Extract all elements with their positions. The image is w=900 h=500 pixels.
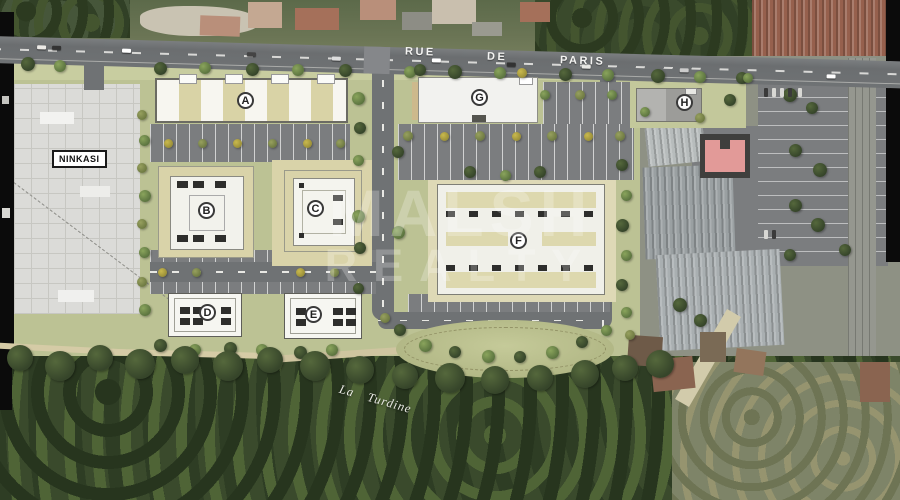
parking-row-east-g [543,82,631,124]
car-icon [680,68,689,72]
warehouse-roof [642,164,735,259]
parking-lot-central [398,124,634,180]
house-roof [360,0,396,20]
house-roof [472,22,502,36]
basin-path-ring [404,327,606,371]
building-label-c: C [307,200,324,217]
rooftop-unit [492,265,501,271]
car-icon [247,52,256,56]
house-roof [650,356,695,392]
car-icon [37,45,46,49]
car-icon [827,74,836,78]
building-label-d: D [199,304,216,321]
scan-edge-left-low [0,352,12,410]
retention-basin [396,320,614,378]
house-roof [200,15,241,36]
house-roof [860,362,890,402]
building-label-g: G [471,89,488,106]
rooftop-unit [469,265,478,271]
rooftop-unit [584,265,593,271]
building-label-e: E [305,306,322,323]
building-label-h: H [676,94,693,111]
rooftop-unit [515,265,524,271]
scan-edge-right [886,0,900,262]
rooftop-unit [538,211,547,217]
industrial-roof-topright [752,0,886,58]
rooftop-unit [446,265,455,271]
car-icon [432,58,441,62]
house-roof [520,2,550,22]
car-icon [122,49,131,53]
ninkasi-roof-block [40,112,74,124]
sport-court-goal [720,140,730,149]
rooftop-unit [561,211,570,217]
site-plan-canvas: RUE DE PARIS NINKASI La Turdine A B C D … [0,0,900,500]
sport-court [700,134,750,178]
ninkasi-roof-block [58,290,94,302]
rooftop-unit [538,265,547,271]
rooftop-unit [492,211,501,217]
rooftop-unit [515,211,524,217]
house-roof [432,0,476,24]
building-label-b: B [198,202,215,219]
street-name-word: DE [487,51,508,64]
ninkasi-roof-block [80,186,110,197]
aerial-top-trees [535,0,770,60]
ninkasi-label: NINKASI [52,150,107,168]
parking-row-north [150,124,350,162]
crosswalk [363,46,390,74]
car-icon [52,46,61,50]
house-roof [733,348,766,376]
rooftop-unit [446,211,455,217]
street-name-word: PARIS [560,54,606,68]
scan-edge-mark [2,96,9,104]
car-icon [507,62,516,66]
building-label-a: A [237,92,254,109]
house-roof [402,12,432,30]
house-roof [295,8,339,30]
building-label-f: F [510,232,527,249]
building-e [284,293,362,339]
rooftop-unit [584,211,593,217]
aerial-topleft-trees [0,0,130,38]
rooftop-unit [561,265,570,271]
house-roof [700,332,726,362]
car-icon [332,56,341,60]
railway-corridor [848,58,876,364]
rooftop-unit [469,211,478,217]
house-roof [248,2,282,28]
scan-edge-mark [2,208,10,218]
street-name-word: RUE [405,45,436,58]
ninkasi-complex [14,84,140,314]
